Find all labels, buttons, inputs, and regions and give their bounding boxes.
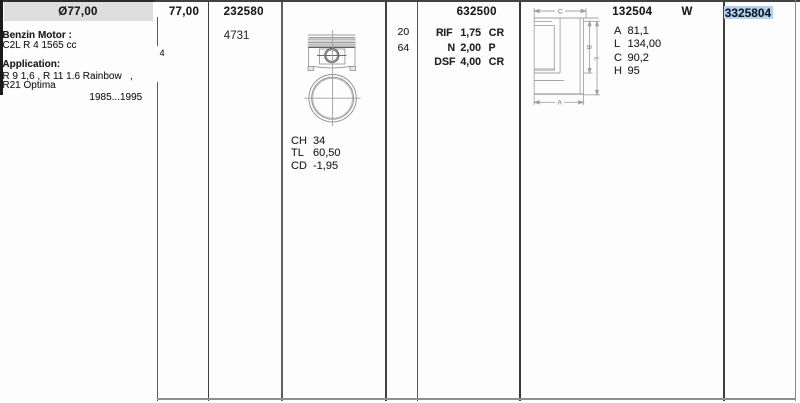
svg-text:L: L: [593, 57, 600, 61]
svg-text:B: B: [585, 45, 592, 49]
svg-text:C: C: [558, 8, 563, 15]
svg-text:A: A: [558, 100, 563, 107]
